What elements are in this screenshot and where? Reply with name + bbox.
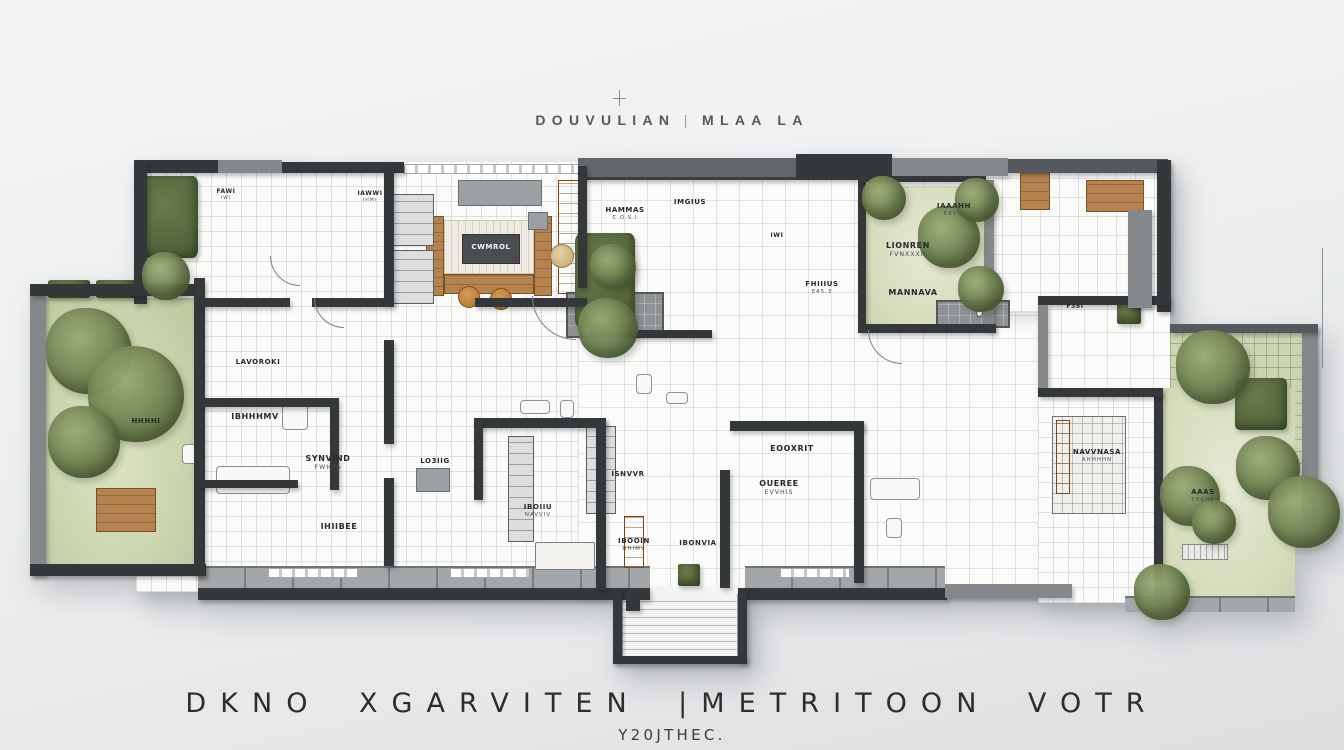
title-right: MLAA LA — [702, 112, 809, 128]
room-label: FAWIIWI — [216, 188, 235, 201]
furniture-block — [528, 212, 548, 230]
bathroom-fixture — [870, 478, 920, 500]
room-label: IAAAHHEXVLI — [937, 202, 971, 218]
room-label: IHIIBEE — [321, 522, 358, 532]
room-label: IWI — [771, 232, 784, 240]
wall — [30, 284, 46, 576]
garden-bench — [1182, 544, 1228, 560]
window — [404, 164, 580, 174]
wall — [218, 160, 282, 173]
tree — [1268, 476, 1340, 548]
caption-line1: DKNO XGARVITEN |METRITOON VOTR — [0, 688, 1344, 719]
room-label: IBONVIA — [679, 539, 716, 548]
room-label: MANNAVA — [888, 288, 937, 298]
tree — [1134, 564, 1190, 620]
wall — [1157, 160, 1171, 312]
wall — [596, 418, 606, 590]
title-separator: | — [675, 112, 702, 128]
room-label: ISNVVR — [611, 470, 644, 479]
wall — [720, 470, 730, 588]
room-label: F38I — [1066, 303, 1083, 311]
wood-furniture — [1086, 180, 1144, 212]
wall — [1170, 324, 1318, 333]
window — [780, 568, 850, 578]
floor-plan: FAWIIWIIAWWIIHMIHAMMASC.O.S.IIMGIUSIWILI… — [30, 148, 1320, 668]
wall — [198, 298, 290, 307]
floor — [1038, 296, 1170, 402]
wall — [198, 588, 650, 600]
tree — [590, 244, 636, 290]
wall — [194, 278, 205, 576]
wood-furniture — [96, 488, 156, 532]
pouf — [550, 244, 574, 268]
wall — [384, 478, 394, 566]
wall — [578, 166, 587, 288]
wall — [892, 158, 1008, 176]
room-label: IBOIIUNAVVIV — [524, 503, 552, 519]
wall — [30, 564, 206, 576]
title-left: DOUVULIAN — [535, 112, 675, 128]
bed — [535, 542, 595, 570]
wall — [198, 480, 298, 488]
wall — [330, 398, 339, 490]
hedge — [678, 564, 700, 586]
wood-furniture — [444, 274, 534, 294]
bathroom-fixture — [560, 400, 574, 418]
wall — [198, 398, 330, 407]
room-label: IBHHHMV — [231, 412, 279, 422]
wall — [384, 166, 394, 304]
wall — [738, 588, 747, 662]
wall — [578, 158, 796, 180]
tree — [48, 406, 120, 478]
room-label: CWMROL — [471, 243, 510, 252]
page-title: DOUVULIAN|MLAA LA — [0, 112, 1344, 128]
wall — [1038, 388, 1162, 397]
window — [450, 568, 530, 578]
wall — [854, 421, 864, 583]
wall — [626, 600, 640, 611]
wall — [730, 421, 864, 431]
wall — [384, 340, 394, 444]
bathroom-fixture — [636, 374, 652, 394]
dimension-tick — [1322, 248, 1323, 368]
room-label: HAMMASC.O.S.I — [605, 206, 644, 222]
bathroom-fixture — [666, 392, 688, 404]
room-label: FHIIIUSE45.3 — [805, 280, 838, 296]
room-label: NAVVNASAAHHHHN — [1073, 448, 1121, 464]
wall — [613, 588, 622, 662]
closet — [392, 194, 434, 246]
bathroom-fixture — [282, 404, 308, 430]
wall — [1038, 305, 1048, 391]
closet — [508, 436, 534, 542]
wall — [945, 584, 1072, 598]
room-label: OUEREEEVVHIS — [759, 479, 798, 497]
room-label: IMGIUS — [674, 198, 706, 207]
tree — [958, 266, 1004, 312]
room-label: HHHHI — [131, 417, 160, 426]
page-background: { "title": { "left": "DOUVULIAN", "separ… — [0, 0, 1344, 750]
bathroom-fixture — [886, 518, 902, 538]
bathroom-fixture — [520, 400, 550, 414]
dimension-tick — [613, 98, 626, 99]
closet — [392, 250, 434, 304]
wall — [474, 418, 606, 428]
tree — [1176, 330, 1250, 404]
wall — [613, 656, 747, 664]
cabinet — [1056, 420, 1070, 494]
tree — [862, 176, 906, 220]
tree — [142, 252, 190, 300]
furniture-block — [416, 468, 450, 492]
room-label: LIONRENFVNXXXN — [886, 241, 930, 259]
wall — [474, 418, 483, 500]
caption-line2: Y20JTHEC. — [0, 726, 1344, 744]
room-label: IAWWIIHMI — [357, 190, 382, 203]
wall — [745, 588, 947, 600]
room-label: LAVOROKI — [236, 358, 281, 367]
room-label: EOOXRIT — [770, 444, 814, 454]
room-label: AAASTHKHE — [1191, 488, 1215, 504]
tree — [578, 298, 638, 358]
furniture-block — [458, 180, 542, 206]
window — [268, 568, 358, 578]
wall — [1008, 159, 1168, 173]
room-label: LO3IIG — [420, 457, 450, 466]
wall — [1128, 210, 1152, 308]
room-label: IBOOINHHIMV — [618, 537, 650, 553]
room-label: SYNVINDFWHYA — [306, 454, 351, 472]
tree — [1192, 500, 1236, 544]
hedge — [142, 176, 198, 258]
